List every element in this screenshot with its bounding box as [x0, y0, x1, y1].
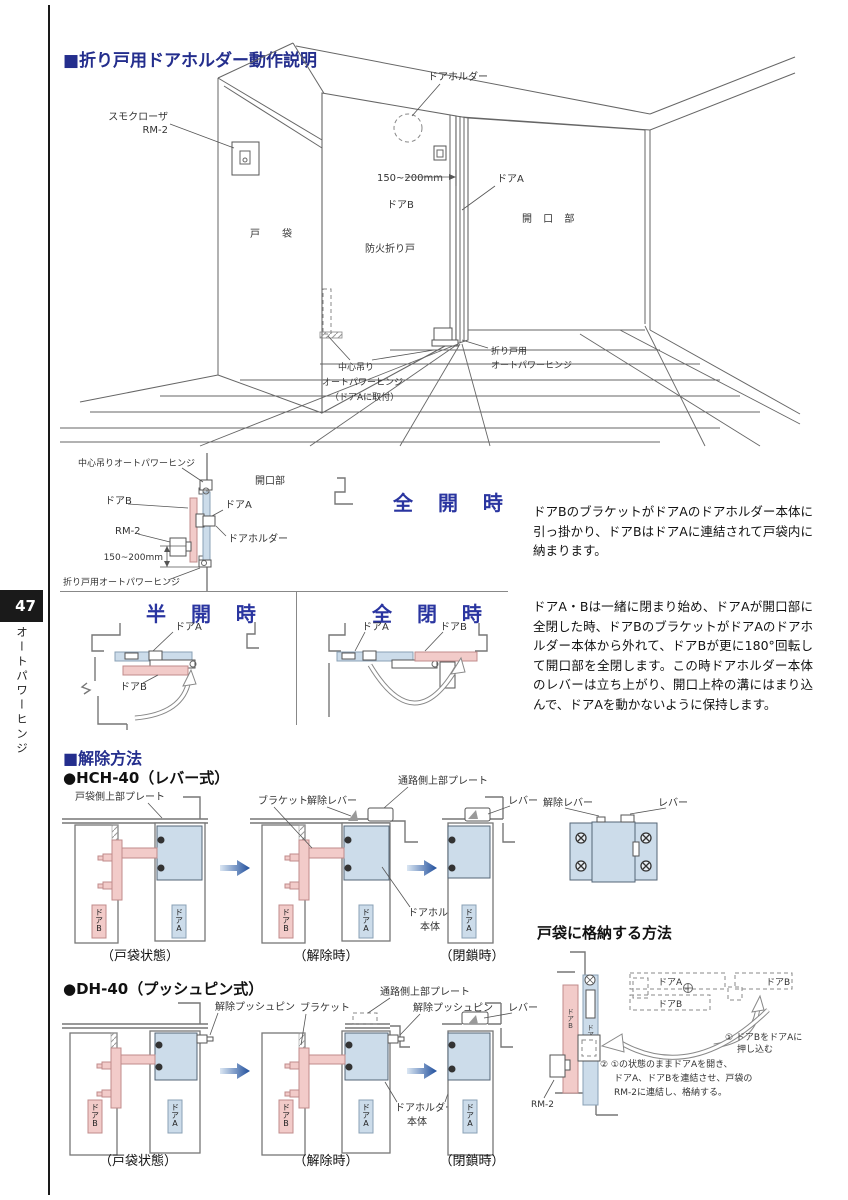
closed-hinge-block	[342, 653, 355, 659]
storage-holder-block	[578, 1035, 600, 1061]
storage-step2-line2: ドアA、ドアBを連結させ、戸袋の	[614, 1072, 752, 1084]
open-door-b-label: ドアB	[105, 496, 132, 507]
storage-step2-line3: RM-2に連結し、格納する。	[614, 1086, 727, 1098]
dh-arrow-2	[407, 1063, 437, 1079]
hch2-door-a-tag: ドアA	[362, 908, 371, 933]
pocket-plate-label: 戸袋側上部プレート	[75, 790, 165, 803]
closed-door-a-label: ドアA	[362, 622, 389, 633]
hch1-door-a-tag: ドアA	[175, 908, 184, 933]
half-open-diagram: ドアA ドアB	[65, 618, 290, 730]
center-hinge-label-3: （ドアAに取付）	[330, 392, 399, 403]
dh1-door-b-tag: ドアB	[91, 1103, 100, 1128]
smoke-closer-label: スモクローザ	[108, 111, 168, 123]
fold-hinge-label-1: 折り戸用	[491, 345, 527, 357]
center-hinge-label-1: 中心吊り	[338, 361, 374, 373]
detail-release-lever-label: 解除レバー	[543, 796, 593, 809]
open-opening-label: 開口部	[255, 474, 285, 487]
storage-step1-line1: ① ドアBをドアAに	[725, 1032, 802, 1043]
pocket-label: 戸 袋	[250, 227, 298, 240]
storage-dashed-door-b2-label: ドアB	[658, 1000, 682, 1010]
door-a-label: ドアA	[497, 174, 524, 185]
divider-horizontal	[60, 591, 508, 592]
hch-caption-closed: （閉鎖時）	[439, 948, 504, 964]
aisle-plate-label: 通路側上部プレート	[398, 774, 488, 787]
main-perspective-diagram: スモクローザ RM-2 ドアホルダー 150~200mm ドアB 防火折り戸 戸…	[60, 34, 820, 446]
half-jambs	[82, 622, 259, 730]
bracket-label: ブラケット	[258, 794, 308, 807]
open-dim-label: 150~200mm	[104, 553, 163, 563]
center-hinge-label-2: オートパワーヒンジ	[322, 377, 403, 388]
sidebar-vertical-label: オートパワーヒンジ	[14, 626, 30, 786]
hch-assembly-closed: ドアA （閉鎖時） レバー	[439, 795, 538, 964]
hch3-door-a-tag: ドアA	[465, 908, 474, 933]
storage-dashed-door-b-label: ドアB	[766, 978, 790, 988]
holder-body-label-2: 本体	[420, 920, 440, 933]
dimension-label: 150~200mm	[377, 173, 443, 184]
door-b-section-bar	[190, 498, 197, 562]
half-swing-arrow	[135, 670, 196, 718]
storage-rm2-tab	[565, 1060, 570, 1070]
open-rm2-label: RM-2	[115, 526, 141, 537]
dh-assembly-pocket: ドアB ドアA （戸袋状態） 解除プッシュピン	[62, 1000, 295, 1169]
storage-channel	[586, 990, 595, 1018]
left-rule	[48, 5, 50, 1195]
jamb-profile-glyph	[335, 478, 353, 504]
smoke-closer-model-label: RM-2	[142, 125, 168, 136]
storage-step1-line2: 押し込む	[737, 1043, 773, 1055]
storage-rm2-label: RM-2	[531, 1100, 554, 1110]
smoke-closer-unit	[232, 142, 259, 175]
hch-assembly-pocket: ドアB ドアA （戸袋状態） 戸袋側上部プレート	[62, 790, 208, 964]
hch-caption-release: （解除時）	[293, 949, 358, 964]
half-door-b-label: ドアB	[120, 682, 147, 693]
storage-door-b-bar-tag: ドアB	[567, 1008, 575, 1030]
closed-holder-block	[363, 651, 376, 660]
catalog-page: 47 オートパワーヒンジ ■折り戸用ドアホルダー動作説明	[0, 0, 848, 1200]
opening-label: 開 口 部	[522, 212, 578, 225]
dh-arrow-1	[220, 1063, 250, 1079]
dh2-door-b-tag: ドアB	[282, 1103, 291, 1128]
hch-caption-pocket: （戸袋状態）	[101, 948, 179, 964]
open-door-a-label: ドアA	[225, 500, 252, 511]
closed-door-b-label: ドアB	[440, 622, 467, 633]
storage-dashed-door-a-label: ドアA	[658, 978, 683, 988]
open-fold-hinge-label: 折り戸用オートパワーヒンジ	[63, 576, 180, 588]
push-pin-label-1: 解除プッシュピン	[215, 1000, 295, 1013]
storage-step2-line1: ② ①の状態のままドアAを開き、	[600, 1058, 733, 1070]
dh-bracket-label: ブラケット	[300, 1001, 350, 1014]
hch-arrow-2	[407, 860, 437, 876]
hch1-door-b-tag: ドアB	[95, 908, 104, 933]
hch-arrow-1	[220, 860, 250, 876]
dh-aisle-plate-label: 通路側上部プレート	[380, 985, 470, 998]
dh3-door-a-tag: ドアA	[466, 1103, 475, 1128]
fully-open-paragraph: ドアBのブラケットがドアAのドアホルダー本体に引っ掛かり、ドアBはドアAに連結さ…	[533, 502, 813, 561]
open-center-hinge-label: 中心吊りオートパワーヒンジ	[78, 457, 195, 469]
door-b-label: ドアB	[387, 200, 414, 211]
holder-detail-view: 解除レバー レバー	[543, 796, 688, 882]
storage-dashed-positions: ドアA ドアB ドアB	[630, 973, 792, 1010]
fully-open-diagram: 150~200mm 中心吊りオートパワーヒンジ ドアB RM-2 折り戸用オート…	[60, 450, 480, 595]
hch2-door-b-tag: ドアB	[282, 908, 291, 933]
release-lever-label: 解除レバー	[307, 794, 357, 807]
fully-open-title: 全 開 時	[393, 487, 512, 516]
fire-door-label: 防火折り戸	[365, 242, 415, 255]
page-number-tab: 47	[0, 590, 43, 622]
dh-assemb-closed: ドアA （閉鎖時） レバー	[439, 1002, 538, 1169]
storage-diagram: ドアB ドアA ドアA ドアB ドアB ① ドアBをドアAに	[530, 940, 848, 1190]
open-holder-label: ドアホルダー	[228, 532, 288, 545]
door-holder-label: ドアホルダー	[428, 70, 488, 83]
lever-label: レバー	[508, 795, 538, 807]
fold-hinge-label-2: オートパワーヒンジ	[491, 360, 572, 371]
storage-rm2-bracket	[550, 1055, 565, 1077]
half-holder-block	[149, 651, 162, 660]
open-section-labels: 中心吊りオートパワーヒンジ ドアB RM-2 折り戸用オートパワーヒンジ 開口部…	[63, 457, 288, 588]
closed-door-b-bar	[415, 652, 477, 661]
dh2-door-a-tag: ドアA	[362, 1103, 371, 1128]
half-hinge-block	[125, 653, 138, 659]
dh-holder-body-label-2: 本体	[407, 1115, 427, 1128]
dh-caption-pocket: （戸袋状態）	[99, 1153, 177, 1169]
fully-closed-diagram: ドアA ドアB	[305, 618, 515, 730]
closed-paragraph: ドアA・Bは一緒に閉まり始め、ドアAが開口部に全閉した時、ドアBのブラケットがド…	[533, 597, 813, 714]
dh-caption-closed: （閉鎖時）	[439, 1153, 504, 1169]
dh-caption-release: （解除時）	[293, 1154, 358, 1169]
divider-vertical	[296, 591, 297, 725]
dh-holder-body-label-1: ドアホルダー	[395, 1101, 455, 1114]
detail-lever-label: レバー	[658, 797, 688, 809]
half-door-b-bar	[123, 666, 188, 675]
page-number: 47	[15, 597, 36, 615]
dh1-door-a-tag: ドアA	[171, 1103, 180, 1128]
release-title: ■解除方法	[63, 745, 142, 769]
half-door-a-label: ドアA	[175, 622, 202, 633]
